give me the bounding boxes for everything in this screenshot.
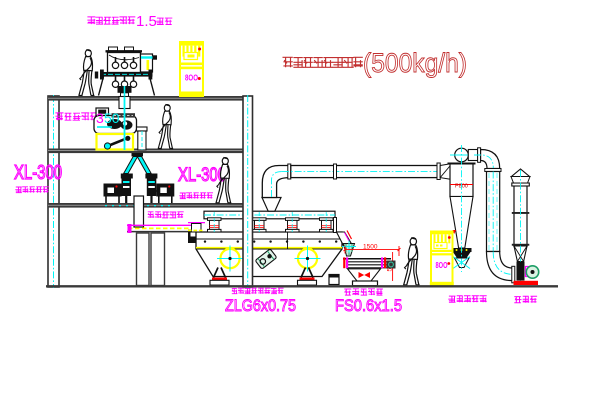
svg-text:1500: 1500 — [363, 244, 378, 251]
svg-text:3: 3 — [96, 110, 104, 126]
svg-text:8OO: 8OO — [185, 73, 198, 83]
svg-text:XL-300: XL-300 — [14, 162, 62, 184]
svg-text:8OO: 8OO — [436, 261, 448, 270]
svg-text:50: 50 — [104, 110, 120, 126]
svg-text:(500kg/h): (500kg/h) — [363, 48, 467, 78]
svg-text:XL-300: XL-300 — [178, 165, 226, 186]
svg-text:ZLG6x0.75: ZLG6x0.75 — [225, 296, 296, 315]
svg-text:FS0.6x1.5: FS0.6x1.5 — [335, 296, 402, 315]
svg-text:1.5: 1.5 — [136, 13, 157, 30]
